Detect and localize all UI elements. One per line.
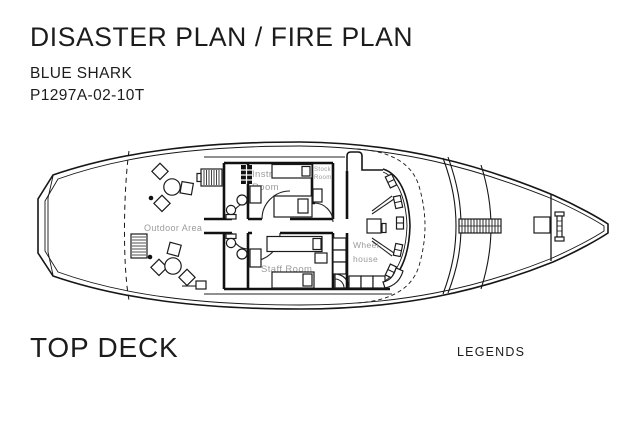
cabin-block: Instructors Room Stock Room Staff Room: [204, 157, 392, 294]
deck-fitting-dot: [149, 196, 154, 201]
pillow-icon: [302, 167, 310, 177]
console-icons: [385, 174, 403, 278]
deck-name-label: TOP DECK: [30, 332, 179, 363]
foredeck: [443, 157, 564, 294]
nightstand-icon: [313, 189, 322, 202]
deck-ladder-icon: [131, 234, 152, 259]
staff-room: Staff Room: [250, 237, 327, 289]
deck-step-box: [196, 281, 206, 289]
deck-plan-drawing: DISASTER PLAN / FIRE PLAN BLUE SHARK P12…: [0, 0, 637, 443]
toilet-icon: [226, 234, 236, 248]
stock-room-label-1: Stock: [314, 167, 332, 173]
fire-plan-sheet: DISASTER PLAN / FIRE PLAN BLUE SHARK P12…: [0, 0, 637, 443]
pillow-icon: [313, 239, 321, 250]
deck-boundary-dashed-line: [124, 151, 129, 300]
wheelhouse-label-2: house: [353, 254, 378, 264]
sink-icon: [237, 249, 247, 259]
pillow-icon: [303, 274, 312, 286]
bow-hatch-icon: [534, 217, 550, 233]
toilet-room-lower: [226, 234, 247, 259]
steering-console-icon: [367, 219, 386, 233]
sink-icon: [237, 195, 247, 205]
wardrobe-icon: [250, 186, 261, 203]
chair-icon: [167, 242, 181, 256]
wheelhouse-label-1: Wheel: [353, 240, 379, 250]
page-title: DISASTER PLAN / FIRE PLAN: [30, 22, 413, 52]
chair-icon: [179, 269, 195, 285]
outdoor-area: Outdoor Area: [131, 163, 222, 289]
outdoor-area-label: Outdoor Area: [144, 223, 202, 233]
chair-icon: [154, 195, 170, 211]
chair-icon: [180, 182, 193, 195]
gangway-ladder-icon: [459, 219, 501, 233]
wardrobe-icon: [250, 249, 261, 267]
vessel-name: BLUE SHARK: [30, 65, 132, 82]
wheelhouse: Wheel house: [347, 149, 425, 303]
companionway-outline: [347, 152, 383, 171]
table-icon: [165, 258, 181, 274]
wheelhouse-bench: [349, 268, 403, 288]
table-icon: [164, 179, 180, 195]
chair-icon: [152, 163, 168, 179]
legends-label: LEGENDS: [457, 345, 525, 359]
toilet-icon: [226, 205, 236, 219]
pillow-icon: [298, 199, 308, 213]
nightstand-icon: [315, 253, 327, 263]
stock-room: Stock Room: [314, 167, 332, 181]
drawing-number: P1297A-02-10T: [30, 87, 145, 104]
deck-locker-icon: [197, 169, 222, 186]
stock-room-label-2: Room: [314, 175, 332, 181]
shelf-grid-icon: [241, 165, 252, 184]
bow-ladder-icon: [555, 212, 564, 241]
